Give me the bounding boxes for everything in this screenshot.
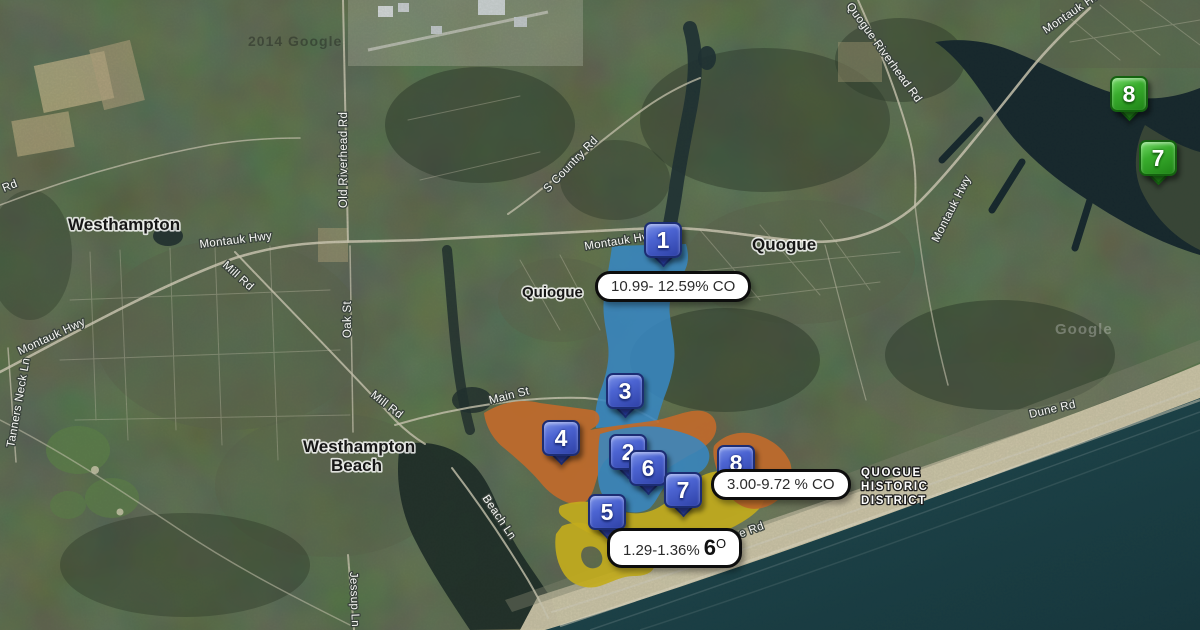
zone-tooltip-co-high-text: 10.99- 12.59% CO <box>611 278 735 295</box>
place-label-historic-2: HISTORIC <box>861 481 929 493</box>
satellite-map-canvas[interactable]: Rd Montauk Hwy Tanners Neck Ln Montauk H… <box>0 0 1200 630</box>
map-pin-3[interactable]: 3 <box>606 373 644 423</box>
map-pin-green-7-number: 7 <box>1139 140 1177 176</box>
place-label-westhampton: Westhampton <box>68 215 180 234</box>
google-attribution-watermark: 2014 Google <box>248 33 342 49</box>
map-pin-green-8[interactable]: 8 <box>1110 76 1148 126</box>
zone-tooltip-co-low: 1.29-1.36%6O <box>607 528 742 568</box>
map-pin-green-7[interactable]: 7 <box>1139 140 1177 190</box>
map-pin-4[interactable]: 4 <box>542 420 580 470</box>
map-pin-1-number: 1 <box>644 222 682 258</box>
google-watermark: Google <box>1055 321 1113 338</box>
map-pin-5-number: 5 <box>588 494 626 530</box>
zone-tooltip-co-low-o: O <box>716 536 726 551</box>
map-pin-3-number: 3 <box>606 373 644 409</box>
road-label-old-riverhead-rd: Old Riverhead Rd <box>338 112 350 208</box>
zone-tooltip-co-mid-text: 3.00-9.72 % CO <box>727 476 835 493</box>
place-label-quogue: Quogue <box>752 235 816 254</box>
place-label-westhampton-beach-1: Westhampton <box>303 437 415 456</box>
map-pin-1[interactable]: 1 <box>644 222 682 272</box>
map-pin-green-8-number: 8 <box>1110 76 1148 112</box>
zone-tooltip-co-high: 10.99- 12.59% CO <box>595 271 751 302</box>
zone-tooltip-co-mid: 3.00-9.72 % CO <box>711 469 851 500</box>
zone-tooltip-co-low-range: 1.29-1.36% <box>623 542 700 559</box>
map-pin-7[interactable]: 7 <box>664 472 702 522</box>
place-label-westhampton-beach-2: Beach <box>331 456 382 475</box>
map-pin-7-number: 7 <box>664 472 702 508</box>
map-pin-6-number: 6 <box>629 450 667 486</box>
zone-tooltip-co-low-six: 6 <box>704 535 716 560</box>
map-pin-6[interactable]: 6 <box>629 450 667 500</box>
place-label-quiogue: Quiogue <box>522 284 583 301</box>
place-label-historic-3: DISTRICT <box>861 495 927 507</box>
road-label-jessup-ln: Jessup Ln <box>347 572 361 628</box>
place-label-historic-1: QUOGUE <box>861 467 922 479</box>
road-label-oak-st: Oak St <box>342 301 354 338</box>
map-pin-4-number: 4 <box>542 420 580 456</box>
